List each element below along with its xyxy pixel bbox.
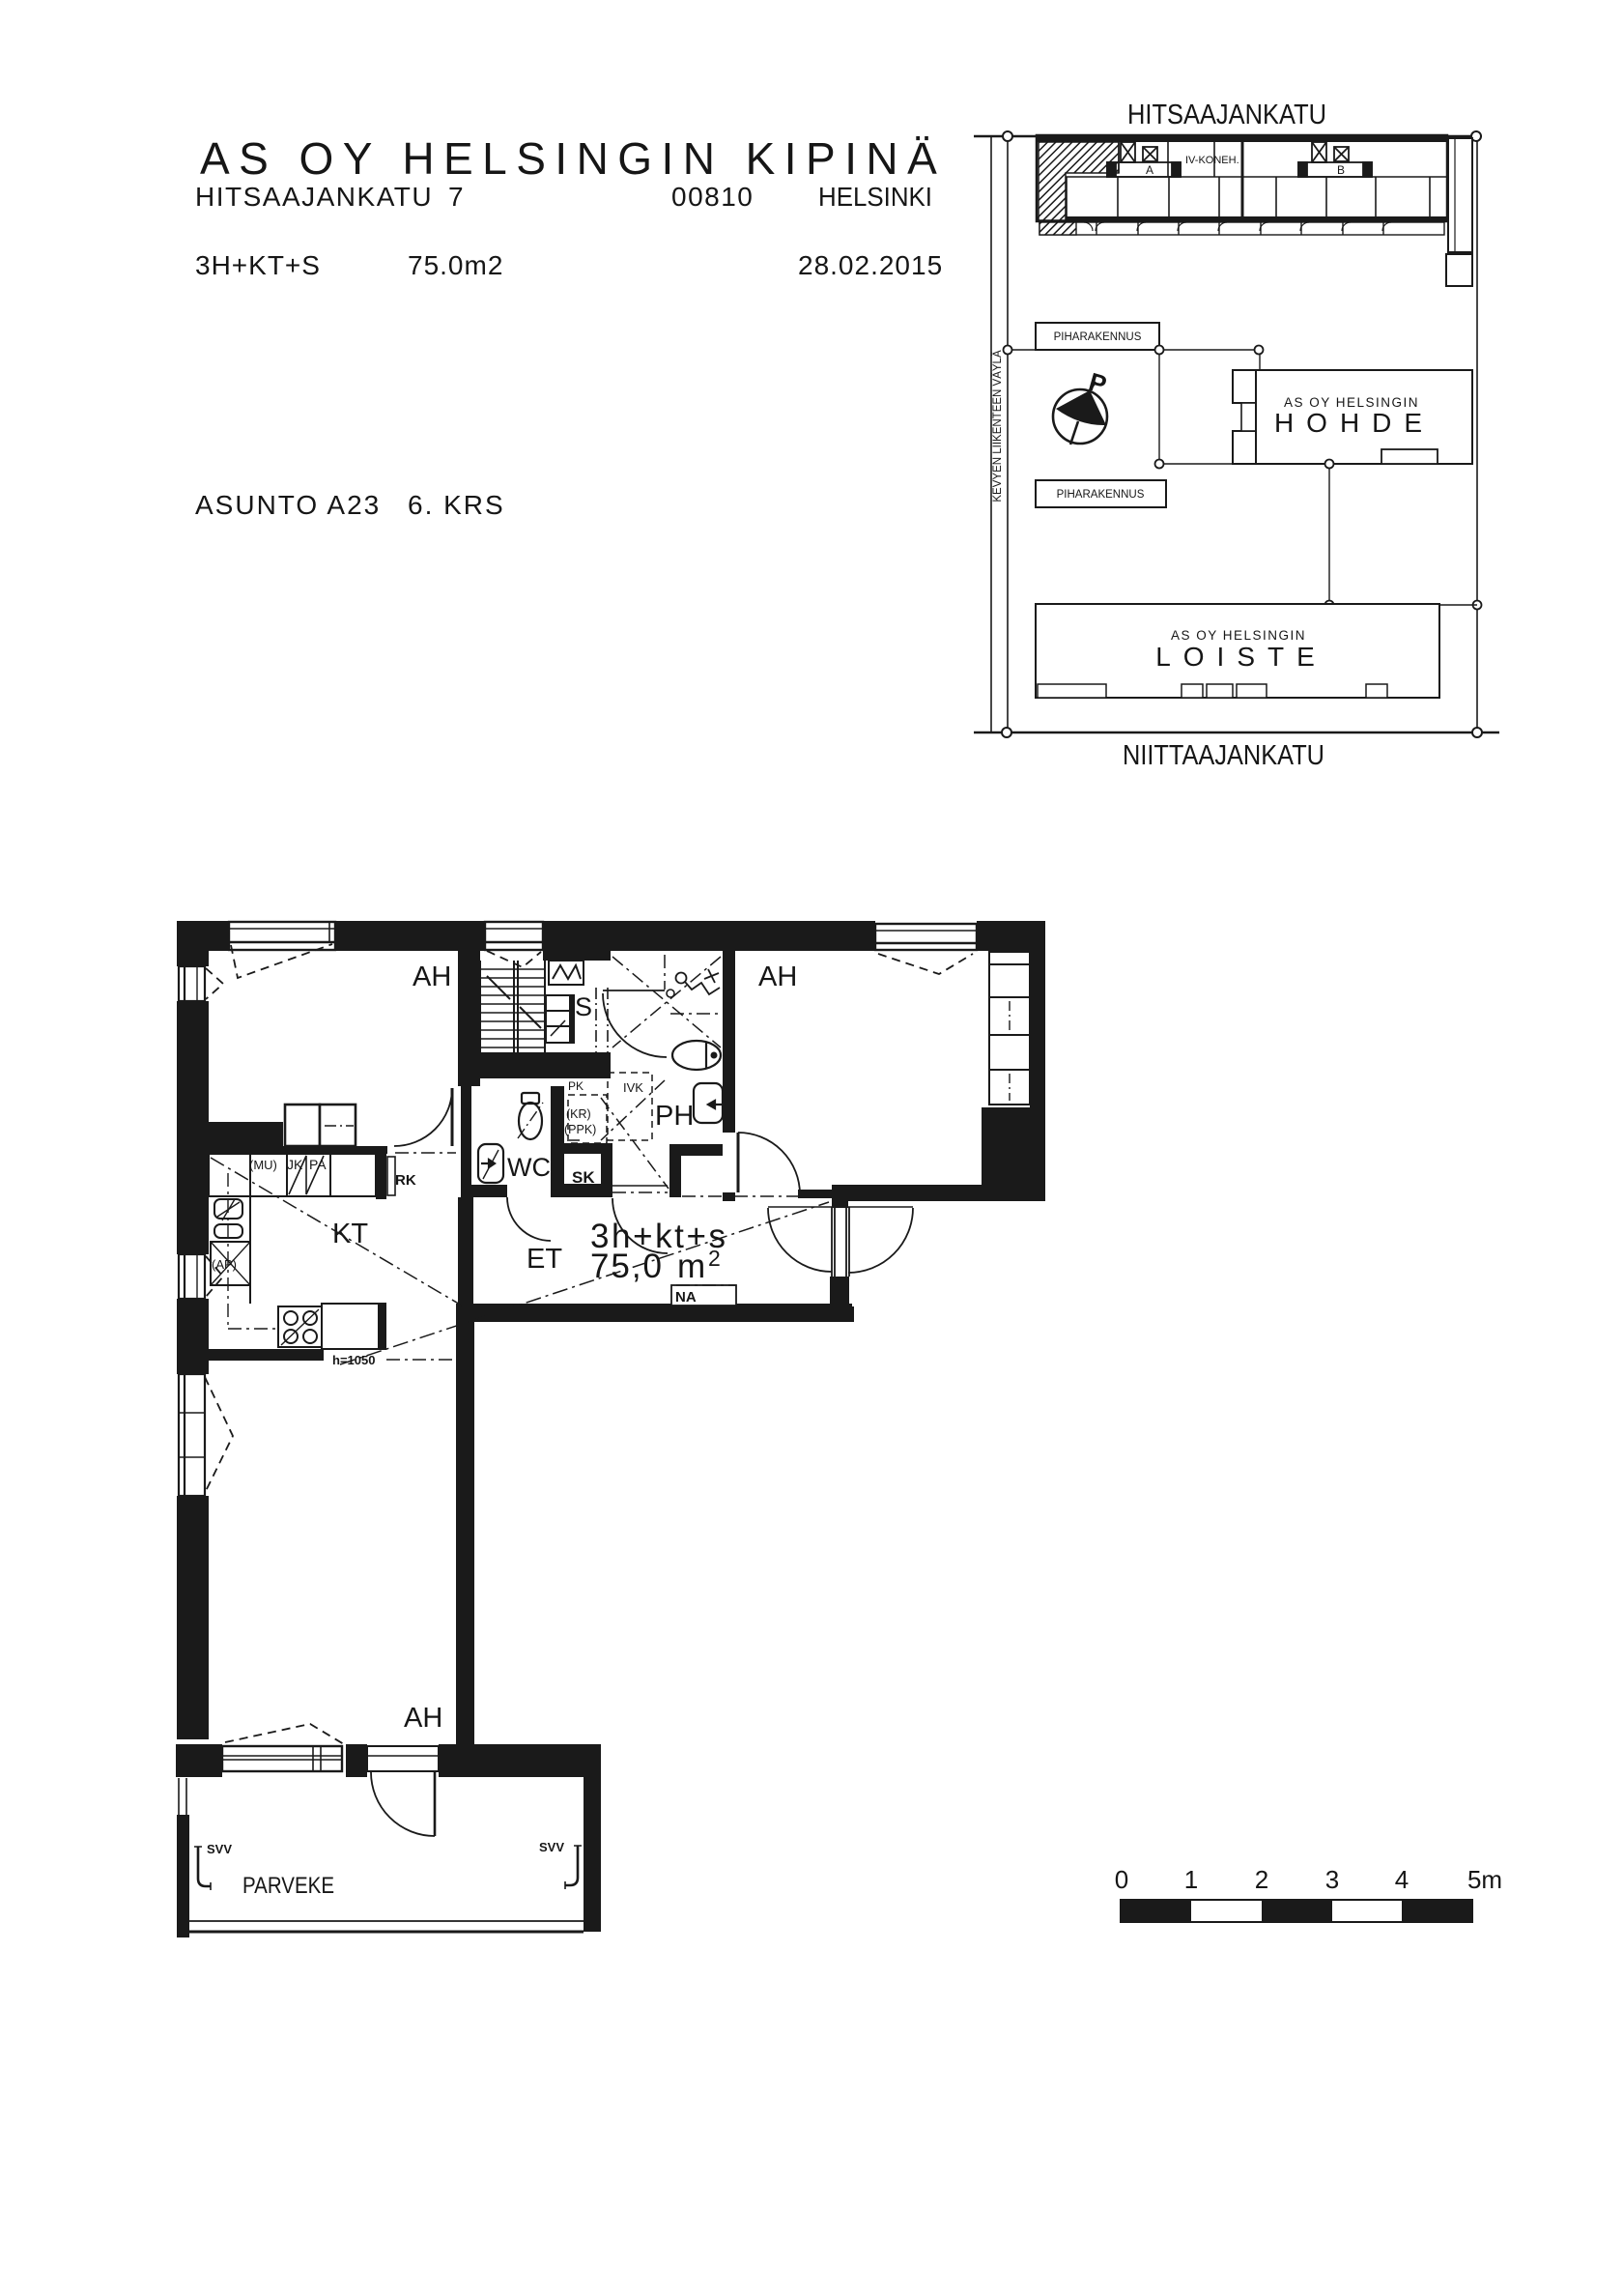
svg-text:HITSAAJANKATU: HITSAAJANKATU (1127, 100, 1326, 130)
svg-text:NA: NA (675, 1289, 697, 1306)
svg-text:PA: PA (309, 1157, 327, 1172)
svg-text:SVV: SVV (207, 1842, 232, 1856)
svg-text:7: 7 (448, 182, 464, 212)
svg-text:AH: AH (758, 961, 797, 992)
svg-text:4: 4 (1395, 1865, 1409, 1894)
svg-text:KEVYEN LIIKENTEEN VÄYLÄ: KEVYEN LIIKENTEEN VÄYLÄ (992, 350, 1004, 502)
svg-text:2: 2 (1255, 1865, 1268, 1894)
svg-text:HITSAAJANKATU: HITSAAJANKATU (195, 182, 433, 212)
svg-text:PARVEKE: PARVEKE (242, 1873, 334, 1899)
svg-text:JK: JK (287, 1157, 303, 1172)
svg-text:PIHARAKENNUS: PIHARAKENNUS (1057, 489, 1145, 501)
svg-text:KT: KT (332, 1219, 368, 1249)
svg-text:SK: SK (572, 1168, 595, 1187)
svg-text:S: S (575, 992, 592, 1021)
svg-text:1: 1 (1184, 1865, 1198, 1894)
svg-text:5m: 5m (1467, 1865, 1502, 1894)
svg-text:WC: WC (507, 1153, 551, 1182)
svg-text:PH: PH (655, 1101, 694, 1132)
svg-text:RK: RK (395, 1172, 416, 1189)
svg-text:HELSINKI: HELSINKI (818, 182, 932, 212)
svg-text:75.0m2: 75.0m2 (408, 250, 503, 280)
svg-text:0: 0 (1115, 1865, 1128, 1894)
svg-text:AS OY HELSINGIN KIPINÄ: AS OY HELSINGIN KIPINÄ (200, 133, 944, 184)
svg-text:PK: PK (568, 1079, 584, 1093)
svg-text:28.02.2015: 28.02.2015 (798, 250, 943, 280)
svg-text:A: A (1146, 163, 1153, 177)
svg-text:AS OY HELSINGIN: AS OY HELSINGIN (1171, 628, 1306, 643)
svg-text:B: B (1337, 163, 1345, 177)
svg-text:LOISTE: LOISTE (1155, 642, 1327, 672)
svg-text:IV-KONEH.: IV-KONEH. (1185, 155, 1239, 166)
svg-text:3H+KT+S: 3H+KT+S (195, 250, 321, 280)
svg-text:SVV: SVV (539, 1840, 564, 1854)
svg-text:HOHDE: HOHDE (1274, 408, 1435, 438)
svg-text:2: 2 (708, 1246, 721, 1271)
svg-text:6. KRS: 6. KRS (408, 490, 505, 520)
svg-text:ASUNTO A23: ASUNTO A23 (195, 490, 381, 520)
svg-text:00810: 00810 (671, 182, 754, 212)
svg-text:AH: AH (413, 961, 451, 992)
svg-text:(KR): (KR) (566, 1107, 591, 1121)
svg-text:ET: ET (527, 1244, 562, 1275)
svg-text:PIHARAKENNUS: PIHARAKENNUS (1054, 331, 1142, 343)
svg-text:3: 3 (1325, 1865, 1339, 1894)
svg-text:NIITTAAJANKATU: NIITTAAJANKATU (1123, 740, 1324, 771)
svg-text:(AP): (AP) (212, 1257, 237, 1272)
svg-text:(PPK): (PPK) (564, 1123, 596, 1136)
svg-text:m: m (677, 1248, 705, 1285)
svg-text:IVK: IVK (623, 1080, 643, 1095)
svg-text:75,0: 75,0 (590, 1248, 662, 1285)
svg-text:(MU): (MU) (249, 1158, 277, 1172)
svg-text:AH: AH (404, 1703, 442, 1734)
